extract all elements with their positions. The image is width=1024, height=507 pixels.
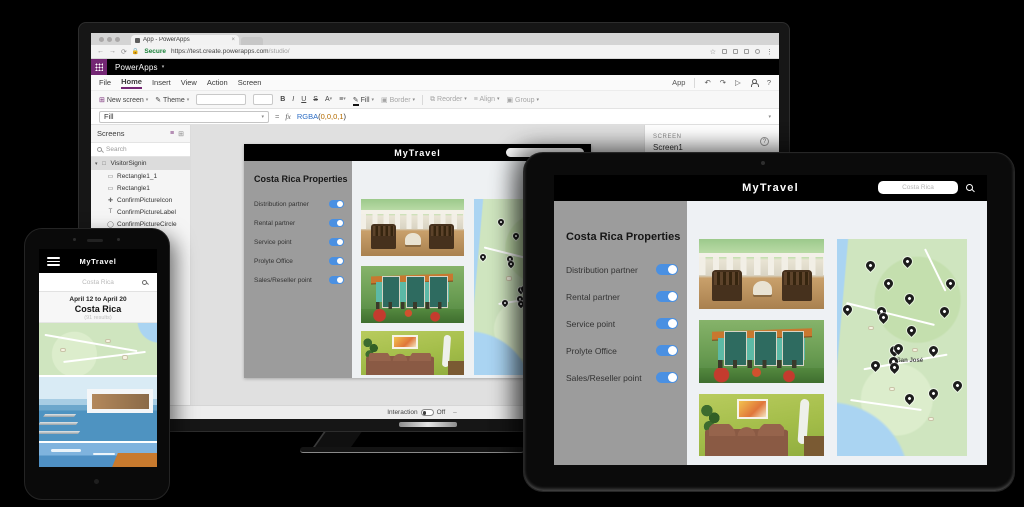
bookmark-star-icon[interactable]: ☆ [710,48,716,56]
toggle-row: Service point [566,318,678,329]
map-pin-icon [511,231,519,239]
map-costa-rica[interactable]: San José [837,239,967,456]
phone-home-button[interactable] [94,479,99,484]
search-icon[interactable] [142,280,147,285]
toggle-switch[interactable] [329,200,344,208]
phone-search-input[interactable]: Costa Rica [39,273,157,292]
profile-icon[interactable] [755,49,760,54]
window-zoom-button[interactable] [115,37,120,42]
undo-icon[interactable]: ↶ [704,78,710,87]
label-icon: T [107,209,114,215]
phone-sensor [117,238,120,241]
app-title: MyTravel [394,148,441,158]
browser-menu-icon[interactable]: ⋮ [766,48,773,56]
screens-panel-header: Screens ≡ ⊞ [91,125,190,142]
underline-button[interactable]: U [301,96,306,103]
app-sidebar: Costa Rica Properties Distribution partn… [244,161,352,378]
expand-caret-icon[interactable]: ▾ [95,161,98,167]
tree-item-confirmpictureicon[interactable]: ✚ ConfirmPictureIcon [91,194,190,206]
tree-item-rectangle1[interactable]: ▭ Rectangle1 [91,182,190,194]
tree-item-label: ConfirmPictureCircle [117,221,177,228]
divider [694,78,695,88]
tree-item-visitorsignin[interactable]: ▾ □ VisitorSignin [91,157,190,170]
interaction-label: Interaction [387,409,417,416]
border-button[interactable]: ▣ Border ▾ [381,96,415,104]
phone-map[interactable] [39,323,157,375]
monitor-stand-base [300,447,524,453]
toggle-label: Distribution partner [566,265,638,275]
toggle-switch[interactable] [656,264,678,275]
toggle-label: Prolyte Office [254,258,293,265]
ribbon-menu: File Home Insert View Action Screen App … [91,75,779,91]
map-road [925,249,947,292]
browser-tab-strip: App - PowerApps × [91,33,779,45]
padlock-icon: 🔒 [132,48,139,55]
toggle-switch[interactable] [329,219,344,227]
photo-villa-pool [39,377,157,441]
map-pin-icon [938,305,951,318]
app-label: App [672,78,685,87]
extension-icon[interactable] [733,49,738,54]
toggle-row: Distribution partner [566,264,678,275]
map-city-label: San José [897,358,923,364]
fx-icon: fx [285,112,290,121]
route-shield-icon [868,326,874,331]
map-road [44,334,137,352]
location-title: Costa Rica [39,304,157,314]
secure-label: Secure [144,48,166,55]
toggle-row: Rental partner [566,291,678,302]
hamburger-menu-icon[interactable] [47,257,60,268]
photo-porch [361,199,464,256]
map-pin-icon [927,388,940,401]
window-close-button[interactable] [99,37,104,42]
app-heading: Costa Rica Properties [254,174,348,184]
toggle-label: Rental partner [254,220,295,227]
account-icon[interactable] [750,79,758,87]
tree-item-label: VisitorSignin [111,160,147,167]
brand-chevron-icon: ▾ [162,64,165,70]
map-pin-icon [882,277,895,290]
font-color-button[interactable]: A▾ [325,96,332,103]
route-shield-icon [912,348,918,353]
tree-item-label: ConfirmPictureIcon [117,197,172,204]
font-size-dropdown[interactable] [253,94,273,105]
ribbon-toolbar: ⊞ New screen ▾ ✎ Theme ▾ B I U S A▾ ≡▾ ✎… [91,91,779,109]
toggle-switch[interactable] [656,345,678,356]
powerapps-header: PowerApps ▾ [91,59,779,75]
screen-icon: □ [101,161,108,167]
play-preview-icon[interactable]: ▷ [735,78,741,87]
tablet-camera [761,161,765,165]
map-road [63,351,145,363]
browser-url-bar: ← → ⟳ 🔒 Secure https://test.create.power… [91,45,779,59]
toggle-switch[interactable] [656,372,678,383]
menu-home[interactable]: Home [121,77,142,89]
menu-view[interactable]: View [181,78,197,87]
toggle-switch[interactable] [329,276,344,284]
new-tab-button[interactable] [241,37,263,45]
tablet-app-sidebar: Costa Rica Properties Distribution partn… [554,201,687,465]
tree-item-rectangle1-1[interactable]: ▭ Rectangle1_1 [91,170,190,182]
help-icon[interactable]: ? [767,78,771,87]
toggle-label: Sales/Reseller point [254,277,312,284]
circle-icon: ◯ [107,221,114,228]
formula-bar: Fill▾ = fx RGBA(0,0,0,1) ▾ [91,109,779,125]
map-pin-icon [478,253,486,261]
align-button[interactable]: ≡ Align ▾ [474,96,500,103]
menu-file[interactable]: File [99,78,111,87]
icon-control-icon: ✚ [107,197,114,204]
tree-item-label: Rectangle1 [117,185,150,192]
toggle-label: Rental partner [566,292,620,302]
waffle-icon[interactable] [91,59,107,75]
tree-item-confirmpicturelabel[interactable]: T ConfirmPictureLabel [91,206,190,218]
panel-section-label: SCREEN [653,134,682,140]
search-icon[interactable] [966,184,973,191]
scene: App - PowerApps × ← → ⟳ 🔒 Secure https:/… [0,0,1024,507]
rectangle-icon: ▭ [107,185,114,192]
search-icon [97,147,102,152]
menu-insert[interactable]: Insert [152,78,171,87]
fill-button[interactable]: ✎ Fill ▾ [353,96,374,104]
tab-title: App - PowerApps [143,37,190,43]
toggle-label: Prolyte Office [566,346,617,356]
map-road [846,302,935,326]
property-dropdown[interactable]: Fill▾ [99,111,269,123]
photo-house [361,266,464,323]
tablet-search-input[interactable]: Costa Rica [878,181,958,194]
phone-screen: MyTravel Costa Rica April 12 to April 20… [39,249,157,467]
map-pin-icon [905,325,918,338]
screens-search[interactable]: Search [91,142,190,157]
reorder-button[interactable]: ⧉ Reorder ▾ [430,96,467,104]
new-screen-button[interactable]: ⊞ New screen ▾ [99,96,148,104]
toggle-switch[interactable] [329,257,344,265]
toggle-label: Sales/Reseller point [566,373,642,383]
window-minimize-button[interactable] [107,37,112,42]
browser-action-icons: ☆ ⋮ [710,48,773,56]
zoom-out-button[interactable]: – [453,409,457,416]
map-pin-icon [944,277,957,290]
toggle-row: Prolyte Office [566,345,678,356]
photo-living-room [699,394,824,456]
route-shield-icon [506,276,512,281]
date-range: April 12 to April 20 [39,296,157,303]
strikethrough-button[interactable]: S [313,96,318,103]
toggle-row: Sales/Reseller point [566,372,678,383]
toggle-switch[interactable] [329,238,344,246]
map-pin-icon [951,379,964,392]
route-shield-icon [928,417,934,422]
tab-close-icon[interactable]: × [231,37,235,43]
toggle-label: Service point [566,319,615,329]
formula-input[interactable]: RGBA(0,0,0,1) [297,112,346,121]
group-button[interactable]: ▣ Group ▾ [506,96,539,104]
toggle-row: Service point [254,238,344,246]
monitor-logo-strip [399,422,457,427]
toggle-label: Distribution partner [254,201,309,208]
photo-beach [39,443,157,467]
tablet-app-heading: Costa Rica Properties [566,231,680,243]
toggle-switch[interactable] [656,291,678,302]
powerapps-brand[interactable]: PowerApps [115,63,158,72]
photo-house [699,320,824,383]
interaction-state: Off [437,409,446,416]
phone-device: MyTravel Costa Rica April 12 to April 20… [24,228,170,500]
photo-porch [699,239,824,309]
menu-screen[interactable]: Screen [238,78,262,87]
results-count: (91 results) [39,315,157,321]
search-placeholder: Costa Rica [82,279,114,286]
map-pin-icon [864,260,877,273]
phone-trip-summary: April 12 to April 20 Costa Rica (91 resu… [39,292,157,323]
phone-app-header: MyTravel [39,249,157,273]
italic-button[interactable]: I [292,96,294,103]
map-pin-icon [497,217,505,225]
map-pin-icon [507,260,515,268]
rectangle-icon: ▭ [107,173,114,180]
tree-item-label: ConfirmPictureLabel [117,209,176,216]
route-shield-icon [122,355,128,360]
redo-icon[interactable]: ↷ [720,78,726,87]
refresh-icon[interactable]: ⟳ [121,48,127,56]
grid-view-icon[interactable]: ⊞ [178,130,184,138]
menu-action[interactable]: Action [207,78,228,87]
toggle-row: Sales/Reseller point [254,276,344,284]
equals-sign: = [275,112,279,121]
photo-living-room [361,331,464,375]
url-text[interactable]: https://test.create.powerapps.com/studio… [171,48,290,55]
menu-right-cluster: App ↶ ↷ ▷ ? [672,78,771,88]
phone-speaker [87,239,103,242]
panel-screen-name[interactable]: Screen1 [653,143,683,152]
toggle-row: Rental partner [254,219,344,227]
toggle-switch[interactable] [656,318,678,329]
map-pin-icon [903,392,916,405]
phone-app-title: MyTravel [80,257,117,266]
map-pin-icon [869,359,882,372]
toggle-row: Prolyte Office [254,257,344,265]
extension-icon[interactable] [722,49,727,54]
tablet-app-title: MyTravel [742,182,799,194]
extension-icon[interactable] [744,49,749,54]
text-align-button[interactable]: ≡▾ [339,96,346,103]
theme-button[interactable]: ✎ Theme ▾ [155,96,189,104]
screens-title: Screens [97,129,125,138]
tree-item-label: Rectangle1_1 [117,173,157,180]
map-pin-icon [501,298,509,306]
interaction-toggle[interactable] [421,409,434,416]
tablet-screen: MyTravel Costa Rica Costa Rica Propertie… [554,175,987,465]
phone-camera [73,238,76,241]
search-placeholder: Costa Rica [902,184,934,191]
divider [422,95,423,105]
tablet-device: MyTravel Costa Rica Costa Rica Propertie… [523,152,1015,492]
font-family-dropdown[interactable] [196,94,246,105]
formula-expand-icon[interactable]: ▾ [768,114,771,120]
browser-tab[interactable]: App - PowerApps × [131,35,239,45]
route-shield-icon [60,348,66,353]
map-pin-icon [901,255,914,268]
interaction-cluster: Interaction Off – [387,409,457,416]
tab-favicon [135,38,140,43]
back-icon[interactable]: ← [97,48,104,55]
route-shield-icon [105,339,111,344]
list-view-icon[interactable]: ≡ [170,130,174,137]
forward-icon[interactable]: → [109,48,116,55]
toggle-row: Distribution partner [254,200,344,208]
screens-search-placeholder: Search [106,146,127,153]
bold-button[interactable]: B [280,96,285,103]
map-pin-icon [903,292,916,305]
route-shield-icon [889,387,895,392]
panel-help-icon[interactable]: ? [760,137,769,146]
toggle-label: Service point [254,239,292,246]
